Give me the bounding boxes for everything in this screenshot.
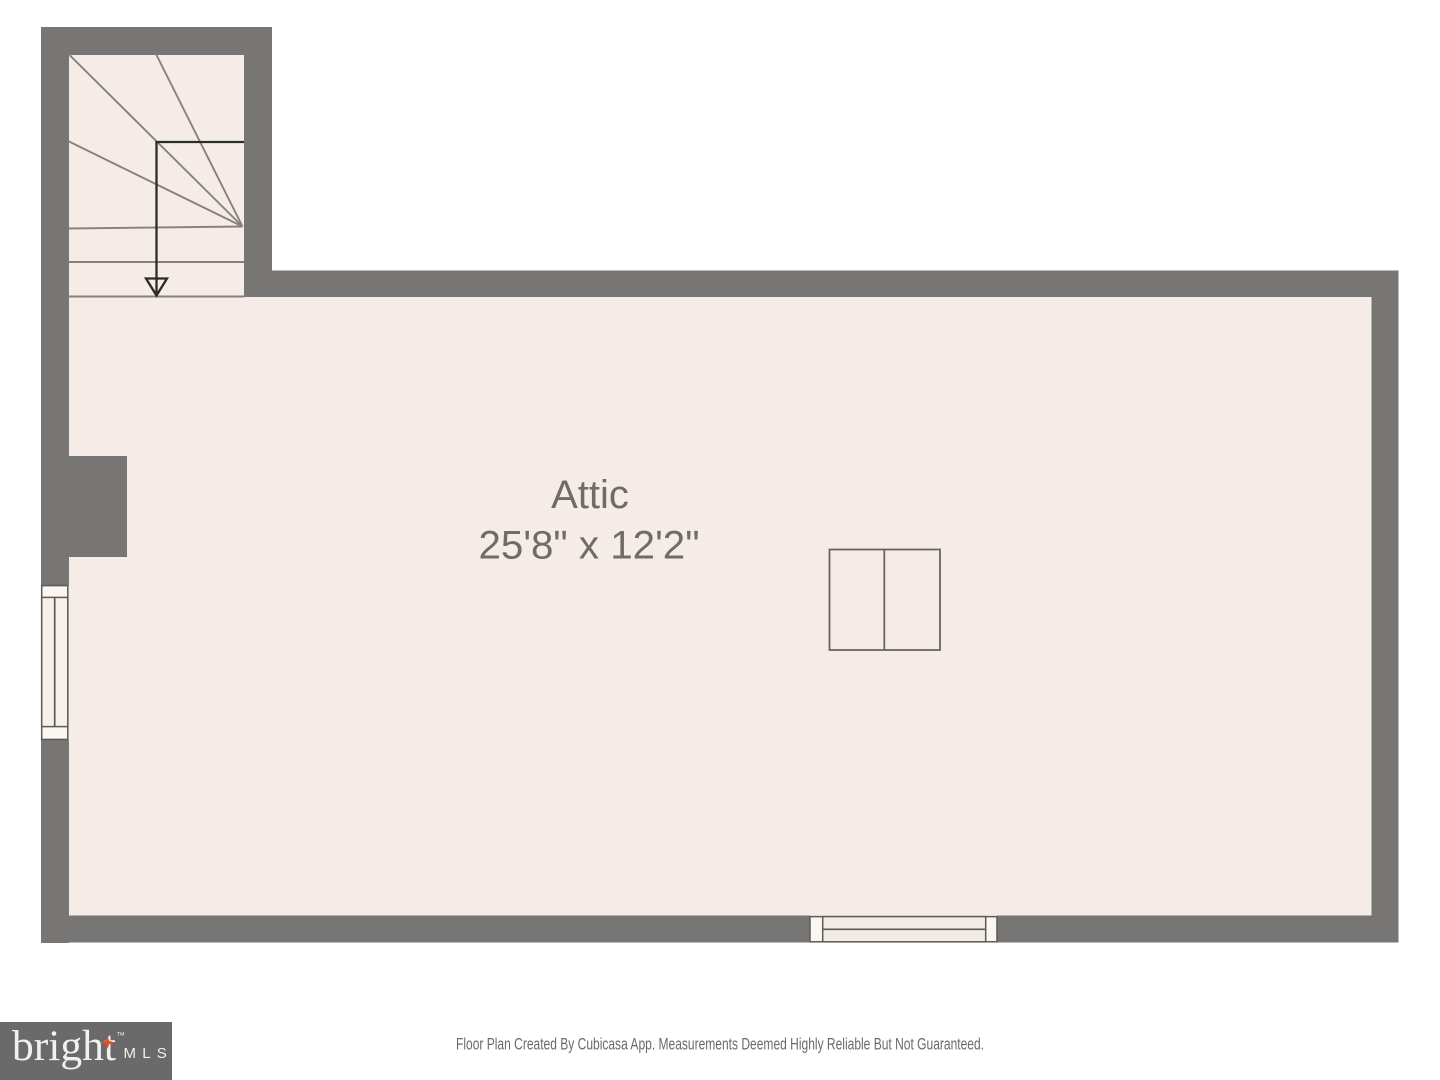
svg-text:bright: bright bbox=[12, 1022, 116, 1070]
svg-text:25'8" x 12'2": 25'8" x 12'2" bbox=[479, 524, 700, 568]
svg-text:™: ™ bbox=[117, 1030, 126, 1040]
svg-text:Attic: Attic bbox=[551, 473, 629, 517]
svg-text:Floor Plan Created By Cubicasa: Floor Plan Created By Cubicasa App. Meas… bbox=[456, 1036, 984, 1054]
svg-text:MLS: MLS bbox=[124, 1045, 173, 1062]
